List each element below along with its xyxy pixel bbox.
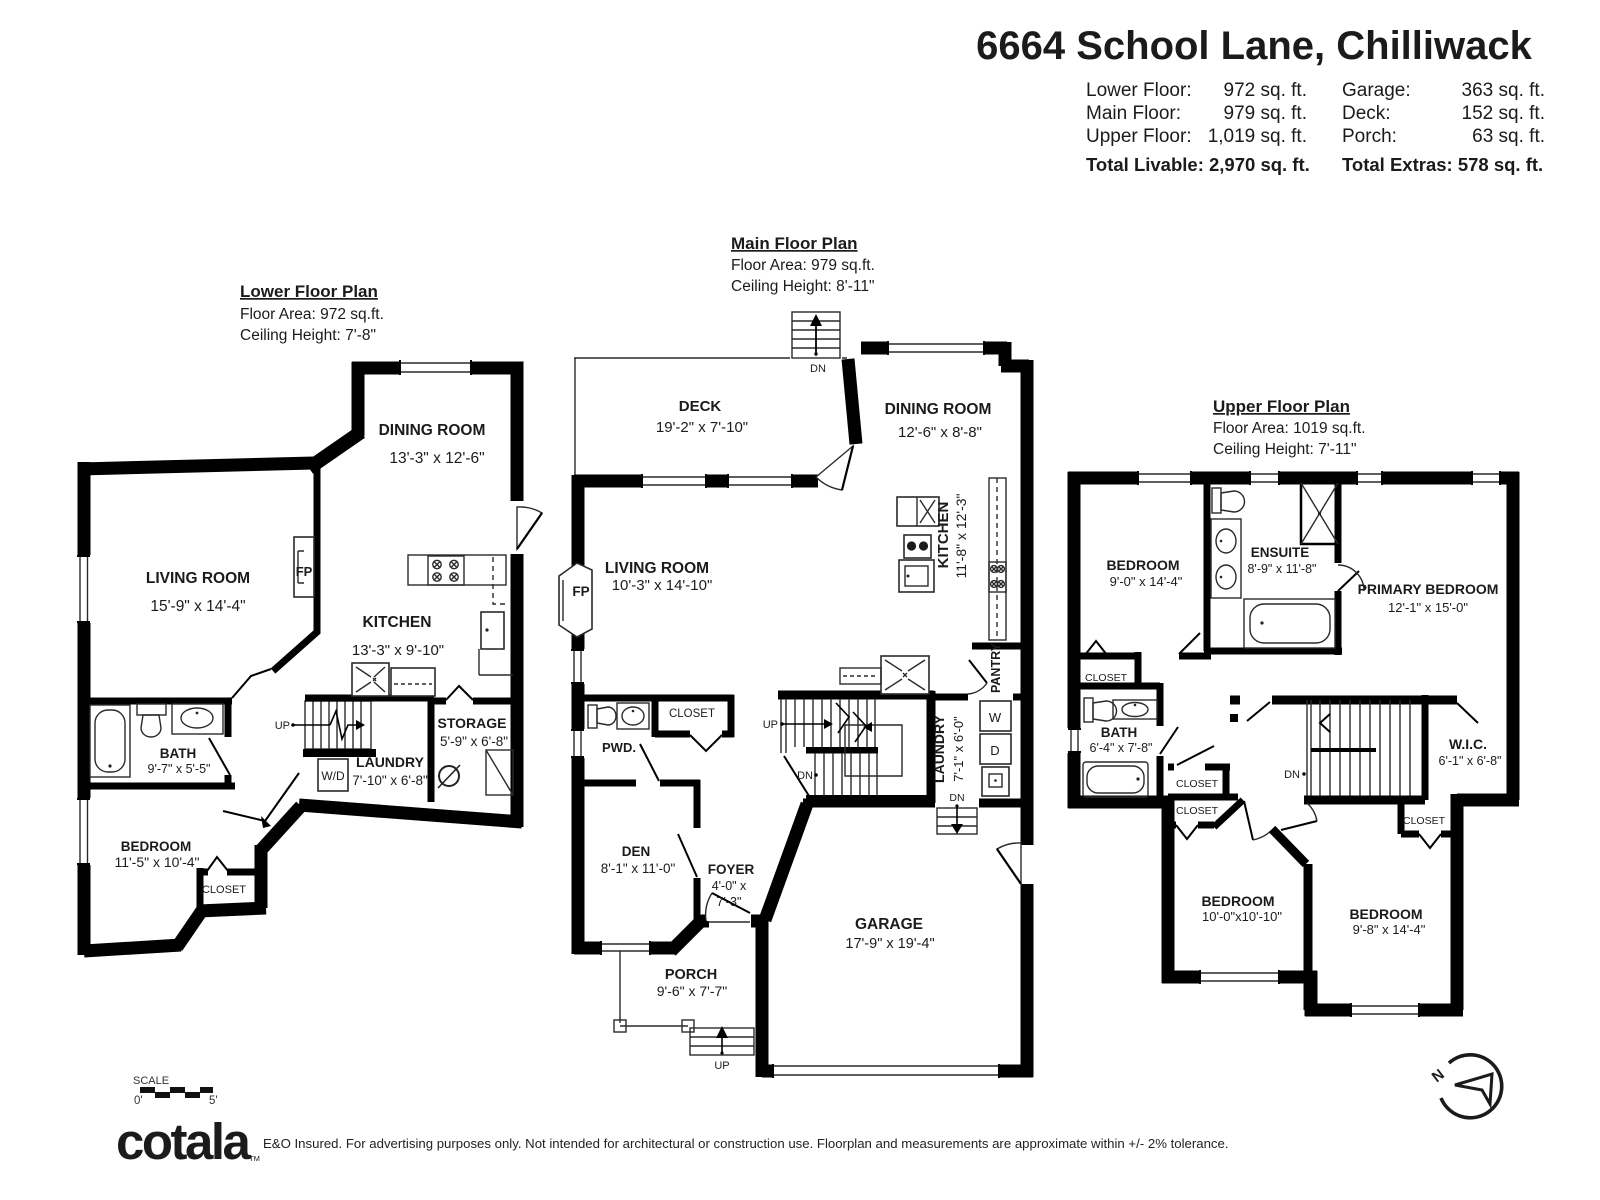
svg-text:PANTRY: PANTRY [989,642,1003,693]
svg-text:5': 5' [209,1095,218,1107]
svg-text:UP: UP [763,719,778,731]
svg-text:5'-9" x 6'-8": 5'-9" x 6'-8" [440,734,508,749]
svg-text:4'-0" x: 4'-0" x [712,879,747,893]
svg-text:63 sq. ft.: 63 sq. ft. [1472,126,1545,147]
svg-text:Garage:: Garage: [1342,80,1411,101]
svg-text:Lower Floor Plan: Lower Floor Plan [240,282,378,301]
svg-text:BEDROOM: BEDROOM [1201,893,1274,909]
svg-text:PRIMARY BEDROOM: PRIMARY BEDROOM [1358,581,1499,597]
svg-text:9'-0" x 14'-4": 9'-0" x 14'-4" [1110,574,1183,589]
svg-text:Lower Floor:: Lower Floor: [1086,80,1192,101]
svg-text:KITCHEN: KITCHEN [363,614,432,631]
svg-text:DINING ROOM: DINING ROOM [379,422,486,439]
svg-text:LAUNDRY: LAUNDRY [931,714,947,783]
svg-text:W.I.C.: W.I.C. [1449,736,1487,752]
svg-text:E&O Insured. For advertising p: E&O Insured. For advertising purposes on… [263,1136,1229,1151]
svg-text:363 sq. ft.: 363 sq. ft. [1462,80,1545,101]
svg-text:19'-2" x 7'-10": 19'-2" x 7'-10" [656,419,748,436]
svg-text:10'-0"x10'-10": 10'-0"x10'-10" [1202,909,1282,924]
svg-text:TM: TM [249,1154,260,1163]
svg-text:8'-9" x 11'-8": 8'-9" x 11'-8" [1247,562,1316,576]
svg-text:12'-6" x 8'-8": 12'-6" x 8'-8" [898,424,982,441]
svg-text:PWD.: PWD. [602,740,636,755]
svg-text:W: W [989,710,1002,725]
svg-text:11'-5" x 10'-4": 11'-5" x 10'-4" [114,854,199,870]
svg-text:Total Livable: 2,970 sq. ft.: Total Livable: 2,970 sq. ft. [1086,154,1310,175]
svg-text:Porch:: Porch: [1342,126,1397,147]
svg-text:7'-3": 7'-3" [717,895,742,909]
svg-text:GARAGE: GARAGE [855,916,923,933]
svg-text:FOYER: FOYER [708,862,755,877]
svg-text:Ceiling Height: 8'-11": Ceiling Height: 8'-11" [731,278,874,295]
svg-text:CLOSET: CLOSET [1403,815,1446,827]
svg-text:Floor Area: 1019 sq.ft.: Floor Area: 1019 sq.ft. [1213,420,1366,437]
svg-text:CLOSET: CLOSET [1176,778,1219,790]
svg-text:BEDROOM: BEDROOM [1349,906,1422,922]
svg-text:13'-3" x 9'-10": 13'-3" x 9'-10" [352,642,444,659]
svg-text:Total Extras: 578 sq. ft.: Total Extras: 578 sq. ft. [1342,154,1543,175]
svg-text:DN: DN [810,363,826,375]
svg-text:FP: FP [572,584,589,599]
svg-text:SCALE: SCALE [133,1075,169,1087]
svg-text:BATH: BATH [160,746,197,761]
svg-text:7'-1" x 6'-0": 7'-1" x 6'-0" [951,716,966,782]
svg-text:Main Floor:: Main Floor: [1086,103,1181,124]
svg-text:cotala: cotala [116,1113,252,1170]
svg-text:BEDROOM: BEDROOM [1106,557,1179,573]
svg-text:Floor Area: 979 sq.ft.: Floor Area: 979 sq.ft. [731,257,875,274]
svg-text:ENSUITE: ENSUITE [1251,545,1310,560]
svg-text:15'-9" x 14'-4": 15'-9" x 14'-4" [150,598,245,615]
svg-text:Upper Floor Plan: Upper Floor Plan [1213,397,1350,416]
svg-text:979 sq. ft.: 979 sq. ft. [1224,103,1307,124]
svg-text:CLOSET: CLOSET [202,884,246,896]
svg-text:Ceiling Height: 7'-8": Ceiling Height: 7'-8" [240,327,376,344]
svg-text:0': 0' [134,1095,143,1107]
svg-text:152 sq. ft.: 152 sq. ft. [1462,103,1545,124]
svg-text:KITCHEN: KITCHEN [935,502,952,569]
svg-text:8'-1" x 11'-0": 8'-1" x 11'-0" [601,861,676,876]
svg-text:9'-7" x 5'-5": 9'-7" x 5'-5" [148,762,211,776]
svg-text:6'-4" x 7'-8": 6'-4" x 7'-8" [1090,741,1153,755]
svg-text:12'-1" x 15'-0": 12'-1" x 15'-0" [1388,600,1468,615]
svg-text:9'-8" x 14'-4": 9'-8" x 14'-4" [1353,922,1426,937]
svg-text:DECK: DECK [679,398,722,415]
svg-text:972 sq. ft.: 972 sq. ft. [1224,80,1307,101]
svg-text:CLOSET: CLOSET [1085,672,1128,684]
svg-text:7'-10" x 6'-8": 7'-10" x 6'-8" [352,773,428,788]
svg-text:PORCH: PORCH [665,967,717,983]
svg-text:9'-6" x 7'-7": 9'-6" x 7'-7" [657,983,728,999]
svg-text:6664 School Lane, Chilliwack: 6664 School Lane, Chilliwack [976,24,1533,68]
svg-text:DEN: DEN [622,844,651,859]
svg-text:D: D [990,743,999,758]
svg-text:DN: DN [1284,769,1300,781]
svg-text:W/D: W/D [321,769,345,783]
svg-text:CLOSET: CLOSET [669,708,715,720]
svg-text:UP: UP [714,1060,729,1072]
svg-text:1,019 sq. ft.: 1,019 sq. ft. [1208,126,1307,147]
svg-text:LAUNDRY: LAUNDRY [356,754,425,770]
svg-text:10'-3" x 14'-10": 10'-3" x 14'-10" [612,577,713,594]
svg-text:LIVING ROOM: LIVING ROOM [146,570,250,587]
svg-text:CLOSET: CLOSET [1176,805,1219,817]
svg-text:FP: FP [296,564,313,579]
svg-text:Main Floor Plan: Main Floor Plan [731,234,858,253]
svg-text:STORAGE: STORAGE [438,715,507,731]
svg-text:6'-1" x 6'-8": 6'-1" x 6'-8" [1439,754,1502,768]
svg-text:DN: DN [949,792,964,804]
svg-text:DINING ROOM: DINING ROOM [885,401,992,418]
svg-text:BEDROOM: BEDROOM [121,839,192,854]
svg-text:13'-3" x 12'-6": 13'-3" x 12'-6" [389,450,484,467]
svg-text:UP: UP [275,720,290,732]
svg-text:BATH: BATH [1101,725,1138,740]
svg-text:11'-8" x 12'-3": 11'-8" x 12'-3" [953,493,969,578]
svg-text:Deck:: Deck: [1342,103,1391,124]
svg-text:Upper Floor:: Upper Floor: [1086,126,1192,147]
svg-text:17'-9" x 19'-4": 17'-9" x 19'-4" [845,936,934,952]
svg-text:DN: DN [797,770,813,782]
svg-text:Ceiling Height: 7'-11": Ceiling Height: 7'-11" [1213,441,1356,458]
svg-text:LIVING ROOM: LIVING ROOM [605,560,709,577]
svg-text:Floor Area: 972 sq.ft.: Floor Area: 972 sq.ft. [240,306,384,323]
